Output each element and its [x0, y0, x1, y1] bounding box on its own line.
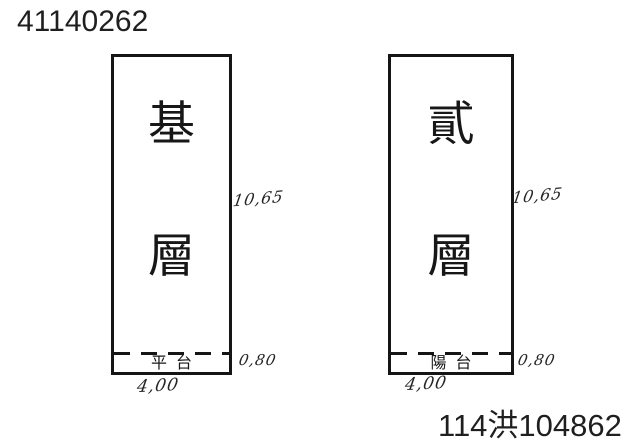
platform-height-dimension-annotation: 0,80: [237, 351, 278, 369]
width-dimension-annotation: 4,00: [135, 375, 180, 397]
height-dimension-annotation: 10,65: [232, 187, 286, 211]
balcony-height-dimension-annotation: 0,80: [516, 351, 557, 369]
floor-label-char-top: 基: [114, 102, 229, 149]
floor-outline-second: 貳 層 陽台: [388, 54, 514, 375]
document-page: 41140262 基 層 平台 10,65 0,80 4,00 貳 層 陽台 1…: [0, 0, 640, 442]
case-number-bottom: 114洪104862: [438, 400, 622, 442]
floor-label-char-bottom: 層: [391, 234, 511, 281]
document-number-top: 41140262: [17, 5, 148, 39]
platform-label: 平台: [114, 356, 229, 372]
floor-outline-base: 基 層 平台: [111, 54, 232, 375]
width-dimension-annotation: 4,00: [403, 373, 448, 395]
floor-label-char-top: 貳: [391, 102, 511, 149]
height-dimension-annotation: 10,65: [511, 184, 565, 208]
floor-label-char-bottom: 層: [114, 234, 229, 281]
balcony-label: 陽台: [391, 356, 511, 372]
